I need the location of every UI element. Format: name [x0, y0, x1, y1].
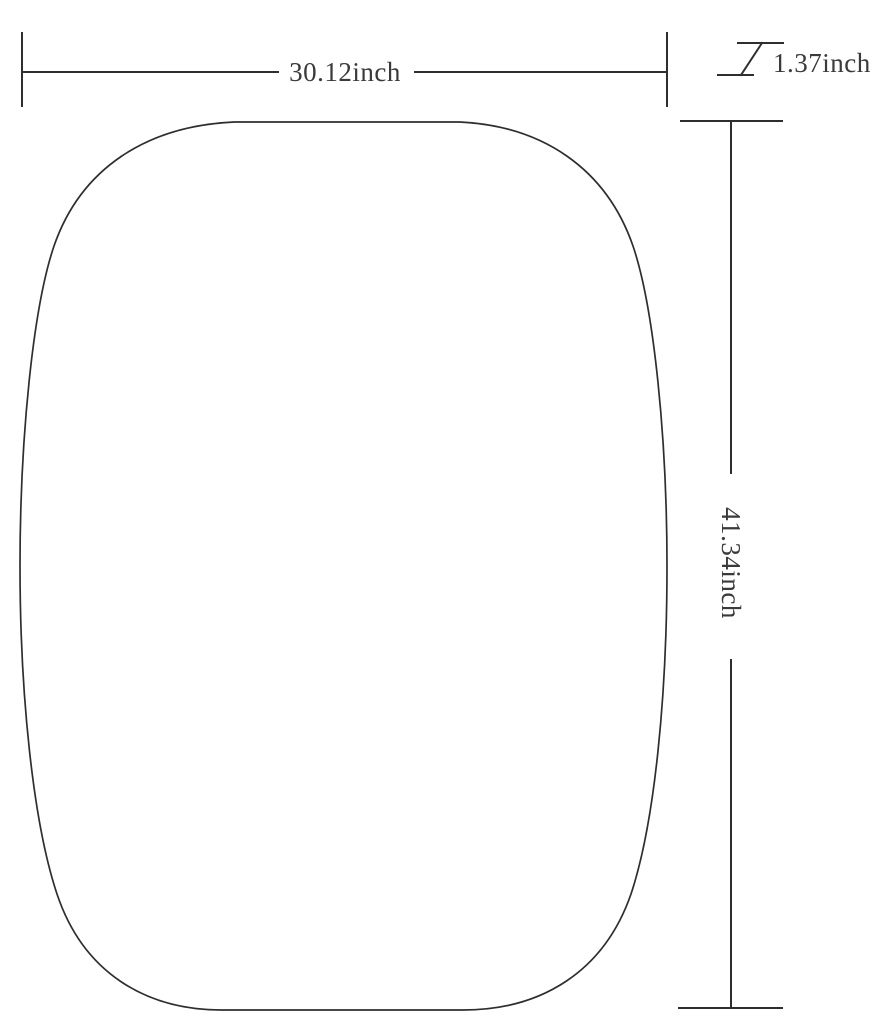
thickness-dimension-label: 1.37inch — [773, 47, 871, 79]
dimension-diagram: 30.12inch 1.37inch 41.34inch — [0, 0, 881, 1024]
width-dimension-label: 30.12inch — [270, 56, 420, 88]
panel-outline-shape — [20, 122, 667, 1010]
thickness-symbol-diagonal-line — [741, 43, 762, 75]
height-dimension-label: 41.34inch — [713, 488, 747, 638]
diagram-canvas — [0, 0, 881, 1024]
diagram-strokes — [20, 33, 783, 1010]
